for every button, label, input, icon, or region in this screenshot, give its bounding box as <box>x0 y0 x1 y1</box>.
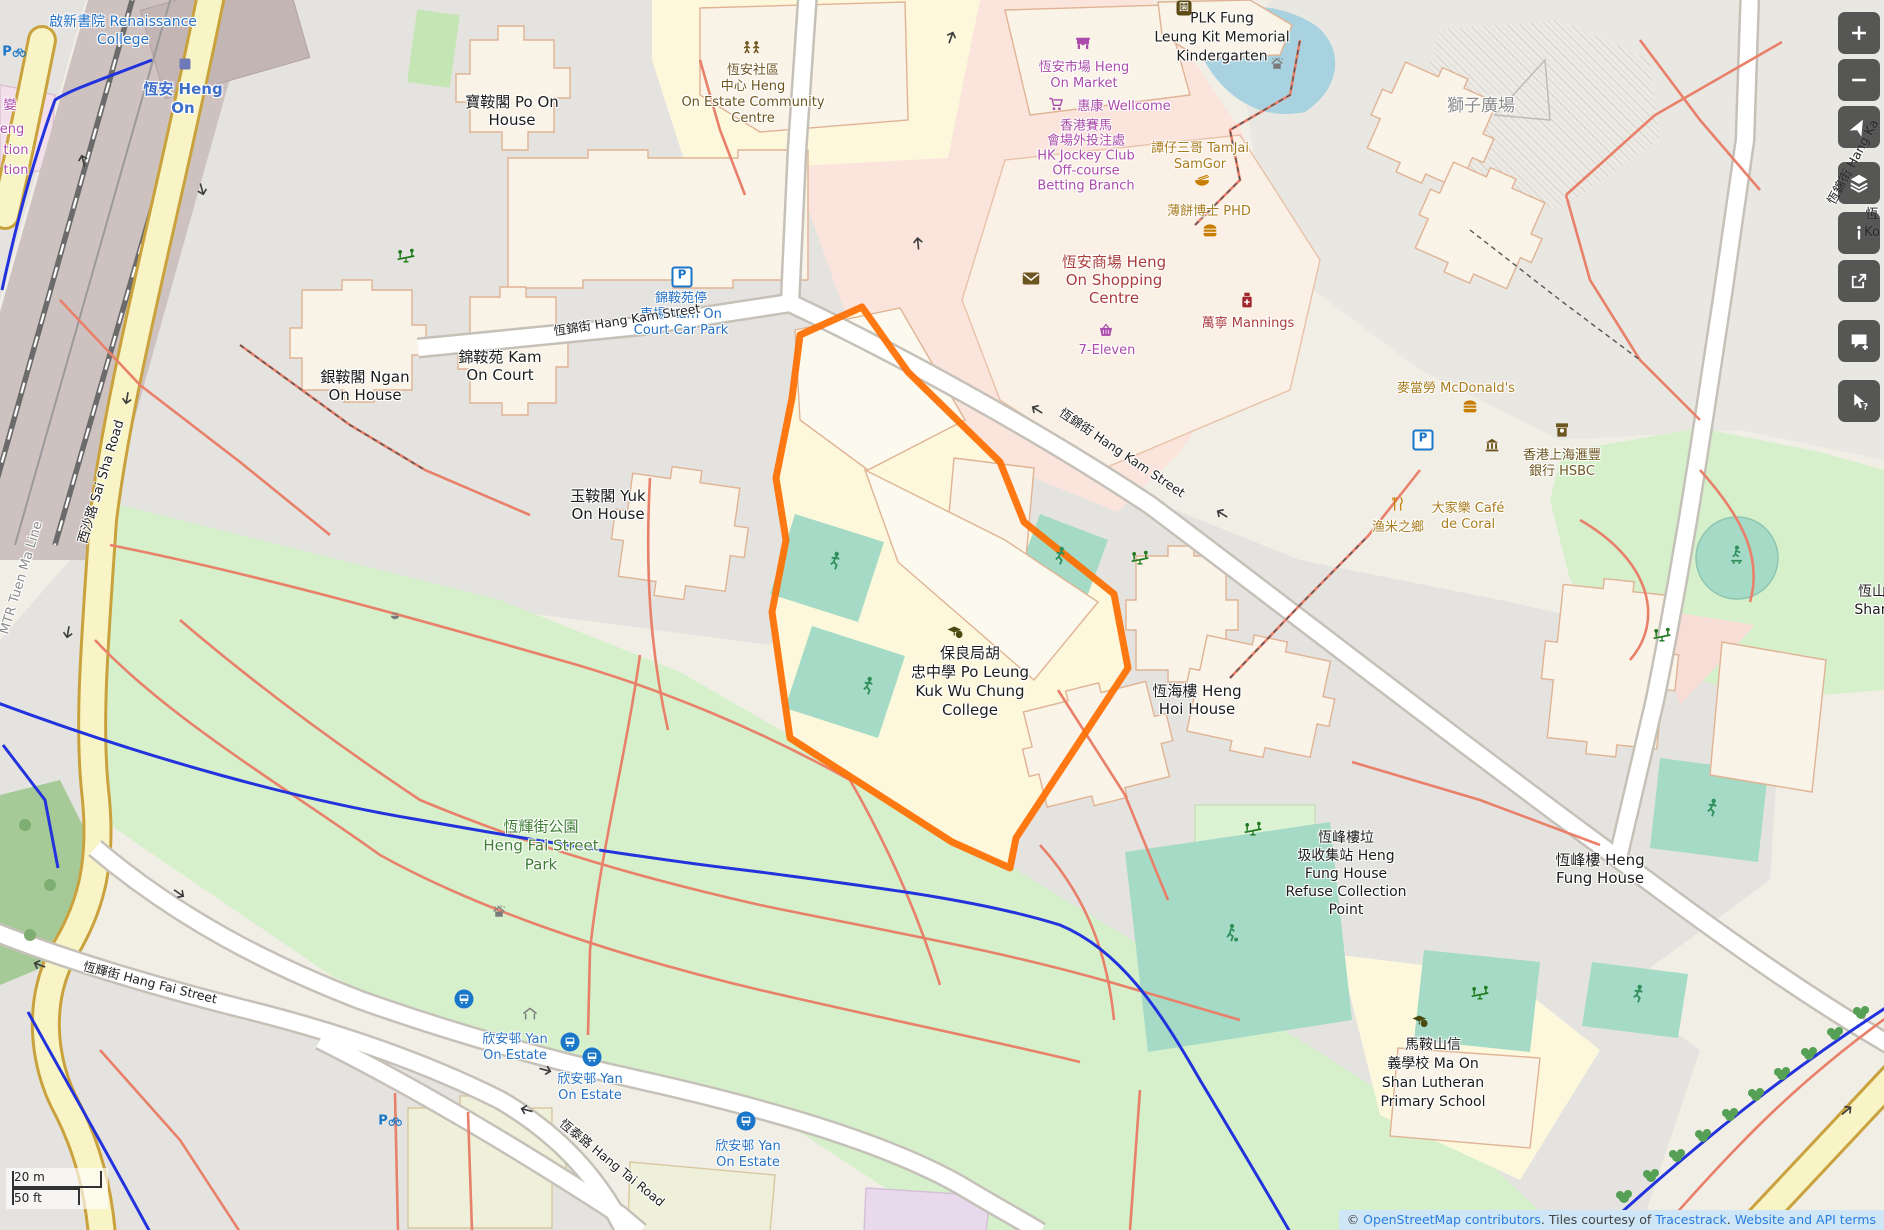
add-note-button[interactable] <box>1838 320 1880 362</box>
svg-text:?: ? <box>1863 402 1868 412</box>
attribution-mid1: . Tiles courtesy of <box>1541 1212 1655 1227</box>
scale-metric: 20 m <box>12 1171 102 1188</box>
tracestrack-link[interactable]: Tracestrack <box>1655 1212 1726 1227</box>
attribution-bar: © OpenStreetMap contributors. Tiles cour… <box>1339 1210 1884 1230</box>
locate-button[interactable] <box>1838 106 1880 148</box>
attribution-mid2: . <box>1727 1212 1735 1227</box>
zoom-out-button[interactable] <box>1838 59 1880 101</box>
attribution-prefix: © <box>1347 1212 1363 1227</box>
share-button[interactable] <box>1838 260 1880 302</box>
layers-button[interactable] <box>1838 162 1880 204</box>
query-features-button[interactable]: ? <box>1838 380 1880 422</box>
map-key-button[interactable] <box>1838 212 1880 254</box>
zoom-in-button[interactable] <box>1838 12 1880 54</box>
map-viewport[interactable]: 啟新書院 RenaissanceCollege恆安 HengOnMTR Tuen… <box>0 0 1884 1230</box>
osm-contributors-link[interactable]: OpenStreetMap contributors <box>1363 1212 1541 1227</box>
map-tiles <box>0 0 1884 1230</box>
scale-bar: 20 m 50 ft <box>6 1168 108 1209</box>
scale-imperial: 50 ft <box>12 1188 80 1205</box>
terms-link[interactable]: Website and API terms <box>1735 1212 1876 1227</box>
